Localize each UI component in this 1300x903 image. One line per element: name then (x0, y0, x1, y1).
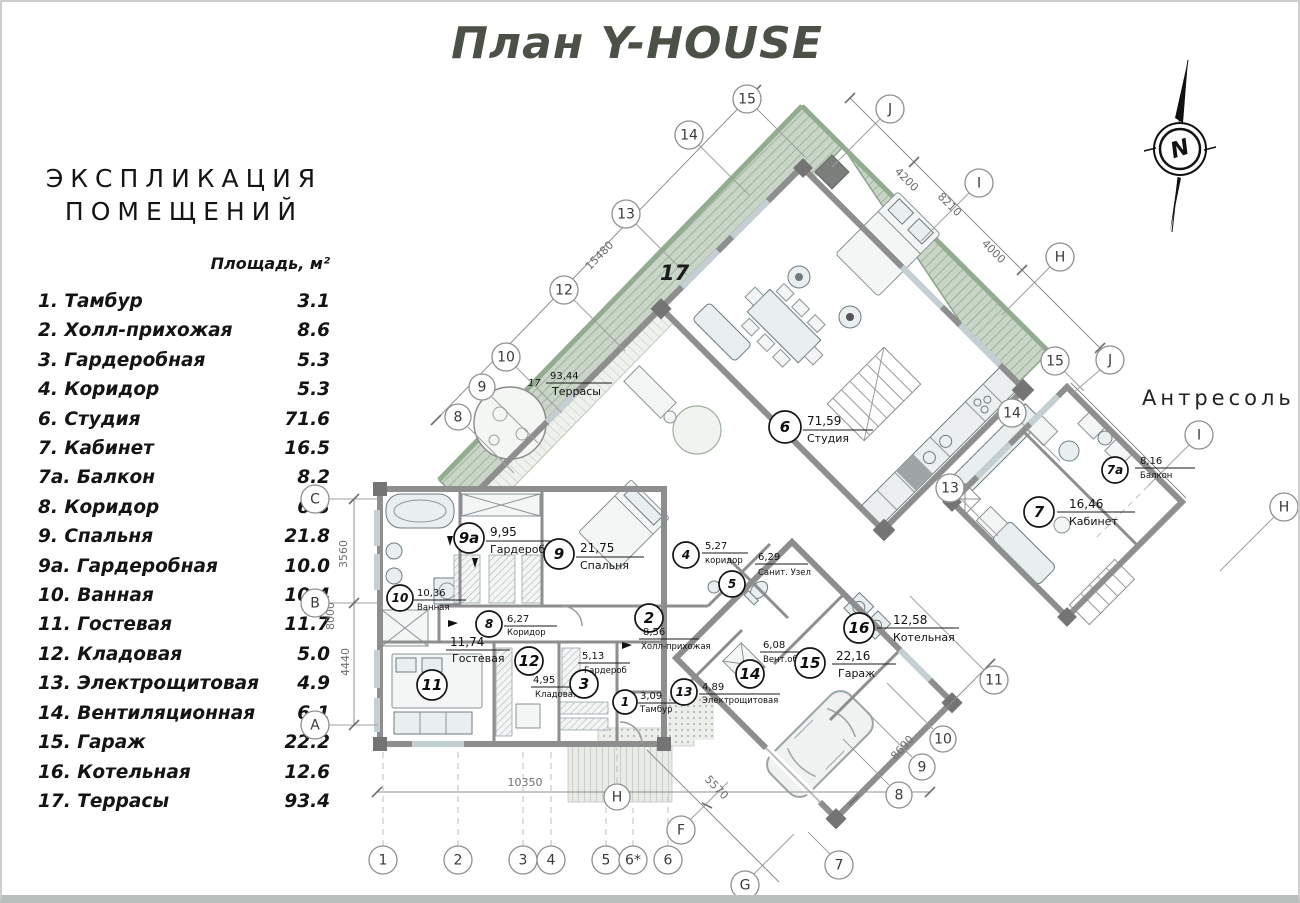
svg-text:9: 9 (918, 760, 927, 776)
svg-text:3,09: 3,09 (640, 691, 662, 702)
axis-bubble-H: H (1046, 243, 1074, 271)
axis-leader (1220, 517, 1274, 571)
svg-text:1: 1 (379, 853, 388, 869)
svg-text:4: 4 (547, 853, 556, 869)
svg-text:71,59: 71,59 (807, 414, 841, 428)
svg-text:13: 13 (676, 685, 693, 699)
axis-bubble-8: 8 (445, 404, 471, 430)
svg-text:12: 12 (555, 283, 573, 299)
svg-text:8: 8 (485, 617, 493, 631)
axis-bubble-14m: 14 (998, 399, 1026, 427)
svg-text:17: 17 (528, 378, 541, 389)
svg-text:1: 1 (621, 695, 629, 709)
roof-mark-17: 17 (660, 261, 690, 285)
deck-lounge (624, 366, 676, 418)
axis-bubble-9: 9 (469, 374, 495, 400)
svg-text:Тамбур: Тамбур (639, 705, 672, 715)
svg-text:10,36: 10,36 (417, 588, 446, 599)
room-label-boiler: 16 12,58 Котельная (844, 613, 959, 644)
svg-text:14: 14 (740, 665, 761, 683)
axis-leader (808, 832, 831, 855)
pillow (396, 658, 416, 672)
fireplace-center (846, 313, 854, 321)
svg-text:Террасы: Террасы (551, 385, 601, 398)
sink (386, 568, 402, 584)
svg-text:11,74: 11,74 (450, 635, 484, 649)
axis-bubble-G: G (731, 871, 759, 899)
axis-bubble-13: 13 (612, 200, 640, 228)
wall-pier (373, 482, 387, 496)
axis-bubble-2: 2 (444, 846, 472, 874)
svg-text:Спальня: Спальня (580, 559, 629, 572)
axis-leader (1072, 370, 1100, 394)
pouf (1059, 441, 1079, 461)
svg-text:12: 12 (519, 652, 540, 670)
dimension-label: 4000 (979, 237, 1008, 266)
svg-text:H: H (612, 790, 623, 806)
axis-bubble-B: B (301, 589, 329, 617)
svg-text:14: 14 (1003, 406, 1021, 422)
svg-text:10: 10 (934, 732, 952, 748)
svg-text:9: 9 (478, 380, 487, 396)
axis-bubble-I: I (965, 169, 993, 197)
svg-text:C: C (310, 492, 320, 508)
axis-bubble-8r: 8 (886, 782, 912, 808)
svg-text:8: 8 (454, 410, 463, 426)
svg-text:4,95: 4,95 (533, 675, 555, 686)
svg-text:15: 15 (1046, 354, 1064, 370)
axis-bubble-14: 14 (675, 121, 703, 149)
svg-text:9: 9 (554, 545, 564, 563)
svg-text:Котельная: Котельная (893, 631, 955, 644)
svg-text:Электрощитовая: Электрощитовая (702, 696, 778, 706)
wall-pier (657, 737, 671, 751)
compass-needle-edge (1172, 177, 1178, 232)
svg-text:3: 3 (519, 853, 528, 869)
svg-text:13: 13 (617, 207, 635, 223)
dimension-label: 10350 (508, 776, 543, 789)
svg-text:Балкон: Балкон (1140, 471, 1172, 481)
axis-bubble-Hm: H (1270, 493, 1298, 521)
axis-bubble-6star: 6* (619, 846, 647, 874)
axis-bubble-1: 1 (369, 846, 397, 874)
axis-bubble-7: 7 (825, 851, 853, 879)
svg-text:10: 10 (392, 591, 409, 605)
svg-text:2: 2 (644, 609, 654, 627)
axis-bubble-12: 12 (550, 276, 578, 304)
svg-text:16: 16 (849, 619, 870, 637)
dimension-label: 15480 (583, 238, 617, 272)
svg-text:5,27: 5,27 (705, 541, 727, 552)
sink (386, 543, 402, 559)
wc-sink (708, 581, 720, 593)
svg-text:Гараж: Гараж (838, 667, 875, 680)
svg-text:14: 14 (680, 128, 698, 144)
axis-bubble-J: J (876, 95, 904, 123)
dimension-label: 5570 (702, 773, 731, 802)
svg-text:9,95: 9,95 (490, 525, 517, 539)
svg-text:93,44: 93,44 (550, 371, 579, 382)
svg-text:7: 7 (1034, 503, 1045, 521)
axis-bubble-3: 3 (509, 846, 537, 874)
svg-text:Гардероб: Гардероб (490, 543, 546, 556)
svg-text:4,89: 4,89 (702, 682, 724, 693)
svg-text:11: 11 (422, 676, 443, 694)
axis-bubble-13m: 13 (936, 474, 964, 502)
svg-text:J: J (1107, 353, 1112, 369)
deck-table (664, 411, 676, 423)
svg-text:8: 8 (895, 788, 904, 804)
svg-text:8,56: 8,56 (643, 627, 665, 638)
svg-text:13: 13 (941, 481, 959, 497)
axis-bubble-Jm: J (1096, 346, 1124, 374)
svg-text:6*: 6* (625, 853, 641, 869)
axis-bubble-6: 6 (654, 846, 682, 874)
svg-text:Санит. Узел: Санит. Узел (758, 568, 811, 578)
axis-bubble-11: 11 (980, 666, 1008, 694)
wardrobe-rack (489, 555, 515, 603)
svg-text:F: F (677, 823, 685, 839)
svg-text:J: J (887, 102, 892, 118)
dimension-label: 3560 (337, 540, 350, 568)
deck-rug (673, 406, 721, 454)
svg-text:4: 4 (681, 548, 690, 562)
svg-text:H: H (1055, 250, 1066, 266)
svg-text:Студия: Студия (807, 432, 849, 445)
svg-text:15: 15 (800, 654, 821, 672)
drawing-sheet: План Y-HOUSE ЭКСПЛИКАЦИЯ ПОМЕЩЕНИЙ Площа… (0, 0, 1300, 903)
axis-bubble-9r: 9 (909, 754, 935, 780)
svg-text:6,29: 6,29 (758, 552, 780, 563)
svg-text:I: I (977, 176, 981, 192)
svg-text:Гардероб: Гардероб (584, 666, 627, 676)
dimension-label: 4440 (339, 648, 352, 676)
axis-bubble-4: 4 (537, 846, 565, 874)
svg-text:Холл-прихожая: Холл-прихожая (641, 642, 711, 652)
svg-text:21,75: 21,75 (580, 541, 614, 555)
svg-text:16,46: 16,46 (1069, 497, 1103, 511)
svg-text:9а: 9а (459, 529, 480, 547)
compass-needle-north (1175, 60, 1188, 123)
svg-text:A: A (310, 718, 320, 734)
dimension-label: 4200 (892, 165, 921, 194)
axis-bubble-H-mid: H (604, 784, 630, 810)
sofa-bench (394, 712, 472, 734)
closet-rack (560, 718, 608, 730)
axis-bubble-A: A (301, 711, 329, 739)
svg-text:5: 5 (602, 853, 611, 869)
axis-bubble-10: 10 (492, 343, 520, 371)
side-table (1054, 517, 1070, 533)
svg-text:H: H (1279, 500, 1290, 516)
svg-text:12,58: 12,58 (893, 613, 927, 627)
svg-text:6,27: 6,27 (507, 614, 529, 625)
axis-bubble-10r: 10 (930, 726, 956, 752)
svg-text:Ванная: Ванная (417, 603, 449, 613)
svg-text:7а: 7а (1107, 463, 1123, 477)
svg-text:8,16: 8,16 (1140, 456, 1162, 467)
svg-text:3: 3 (579, 675, 589, 693)
svg-text:B: B (310, 596, 320, 612)
svg-text:15: 15 (738, 92, 756, 108)
axis-bubble-15m: 15 (1041, 347, 1069, 375)
pouf-center (795, 273, 803, 281)
axis-bubble-5: 5 (592, 846, 620, 874)
svg-text:Гостевая: Гостевая (452, 652, 505, 665)
svg-text:10: 10 (497, 350, 515, 366)
axis-leader (754, 834, 794, 874)
axis-bubble-C: C (301, 485, 329, 513)
axis-bubble-F: F (667, 816, 695, 844)
axis-bubble-15: 15 (733, 85, 761, 113)
svg-text:6,08: 6,08 (763, 640, 785, 651)
svg-text:6: 6 (780, 418, 790, 436)
svg-text:5: 5 (728, 577, 736, 591)
svg-text:11: 11 (985, 673, 1003, 689)
axis-bubble-Im: I (1185, 421, 1213, 449)
svg-text:7: 7 (835, 858, 844, 874)
svg-text:G: G (740, 878, 751, 894)
floor-plan-drawing: 15480 4200 8210 4000 3560 8000 4440 1035… (2, 2, 1300, 903)
svg-text:I: I (1197, 428, 1201, 444)
svg-text:22,16: 22,16 (836, 649, 870, 663)
svg-text:6: 6 (664, 853, 673, 869)
bathtub (386, 494, 454, 528)
dimension-label: 8210 (935, 190, 964, 219)
svg-text:Кабинет: Кабинет (1069, 515, 1118, 528)
compass: N (1144, 60, 1216, 232)
svg-text:2: 2 (454, 853, 463, 869)
svg-text:5,13: 5,13 (582, 651, 604, 662)
storage-box (516, 704, 540, 728)
wardrobe-rack (522, 555, 542, 603)
svg-text:коридор: коридор (705, 556, 743, 566)
svg-text:Коридор: Коридор (507, 628, 546, 638)
closet-rack (560, 702, 608, 714)
wall-pier (373, 737, 387, 751)
